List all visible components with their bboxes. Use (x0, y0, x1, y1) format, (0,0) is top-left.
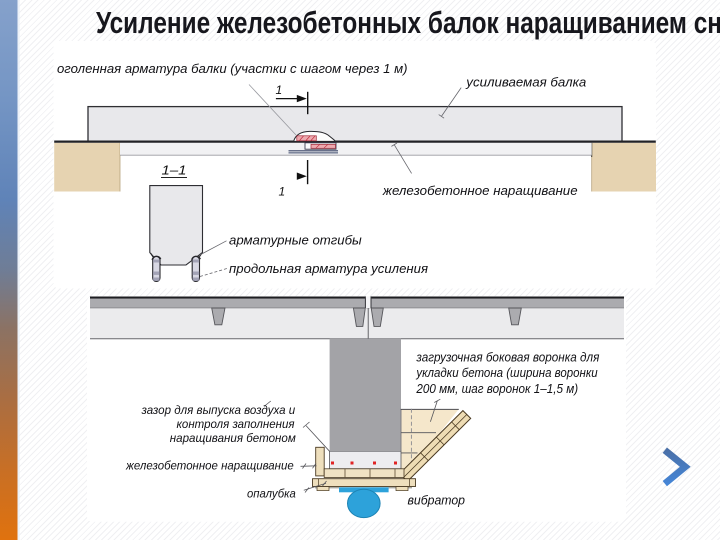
svg-text:железобетонное наращивание: железобетонное наращивание (382, 183, 578, 198)
svg-text:Усиление железобетонных балок: Усиление железобетонных балок наращивани… (96, 5, 720, 40)
svg-text:1: 1 (276, 83, 283, 97)
svg-text:1–1: 1–1 (162, 163, 187, 178)
svg-text:вибратор: вибратор (408, 494, 466, 508)
svg-text:опалубка: опалубка (247, 487, 296, 500)
svg-text:200 мм, шаг воронок 1–1,5 м): 200 мм, шаг воронок 1–1,5 м) (415, 382, 578, 396)
svg-text:контроля заполнения: контроля заполнения (177, 418, 295, 431)
svg-text:наращивания бетоном: наращивания бетоном (170, 432, 296, 445)
svg-text:зазор для выпуска воздуха и: зазор для выпуска воздуха и (141, 404, 296, 417)
svg-text:арматурные отгибы: арматурные отгибы (229, 233, 362, 248)
svg-text:продольная арматура усиления: продольная арматура усиления (229, 261, 428, 276)
svg-text:1: 1 (279, 185, 286, 199)
svg-text:железобетонное наращивание: железобетонное наращивание (125, 460, 294, 473)
svg-text:усиливаемая балка: усиливаемая балка (465, 75, 586, 90)
svg-text:загрузочная боковая воронка дл: загрузочная боковая воронка для (415, 350, 599, 364)
svg-text:укладки бетона (ширина воронки: укладки бетона (ширина воронки (415, 366, 597, 380)
svg-text:оголенная арматура балки (учас: оголенная арматура балки (участки с шаго… (57, 61, 408, 76)
